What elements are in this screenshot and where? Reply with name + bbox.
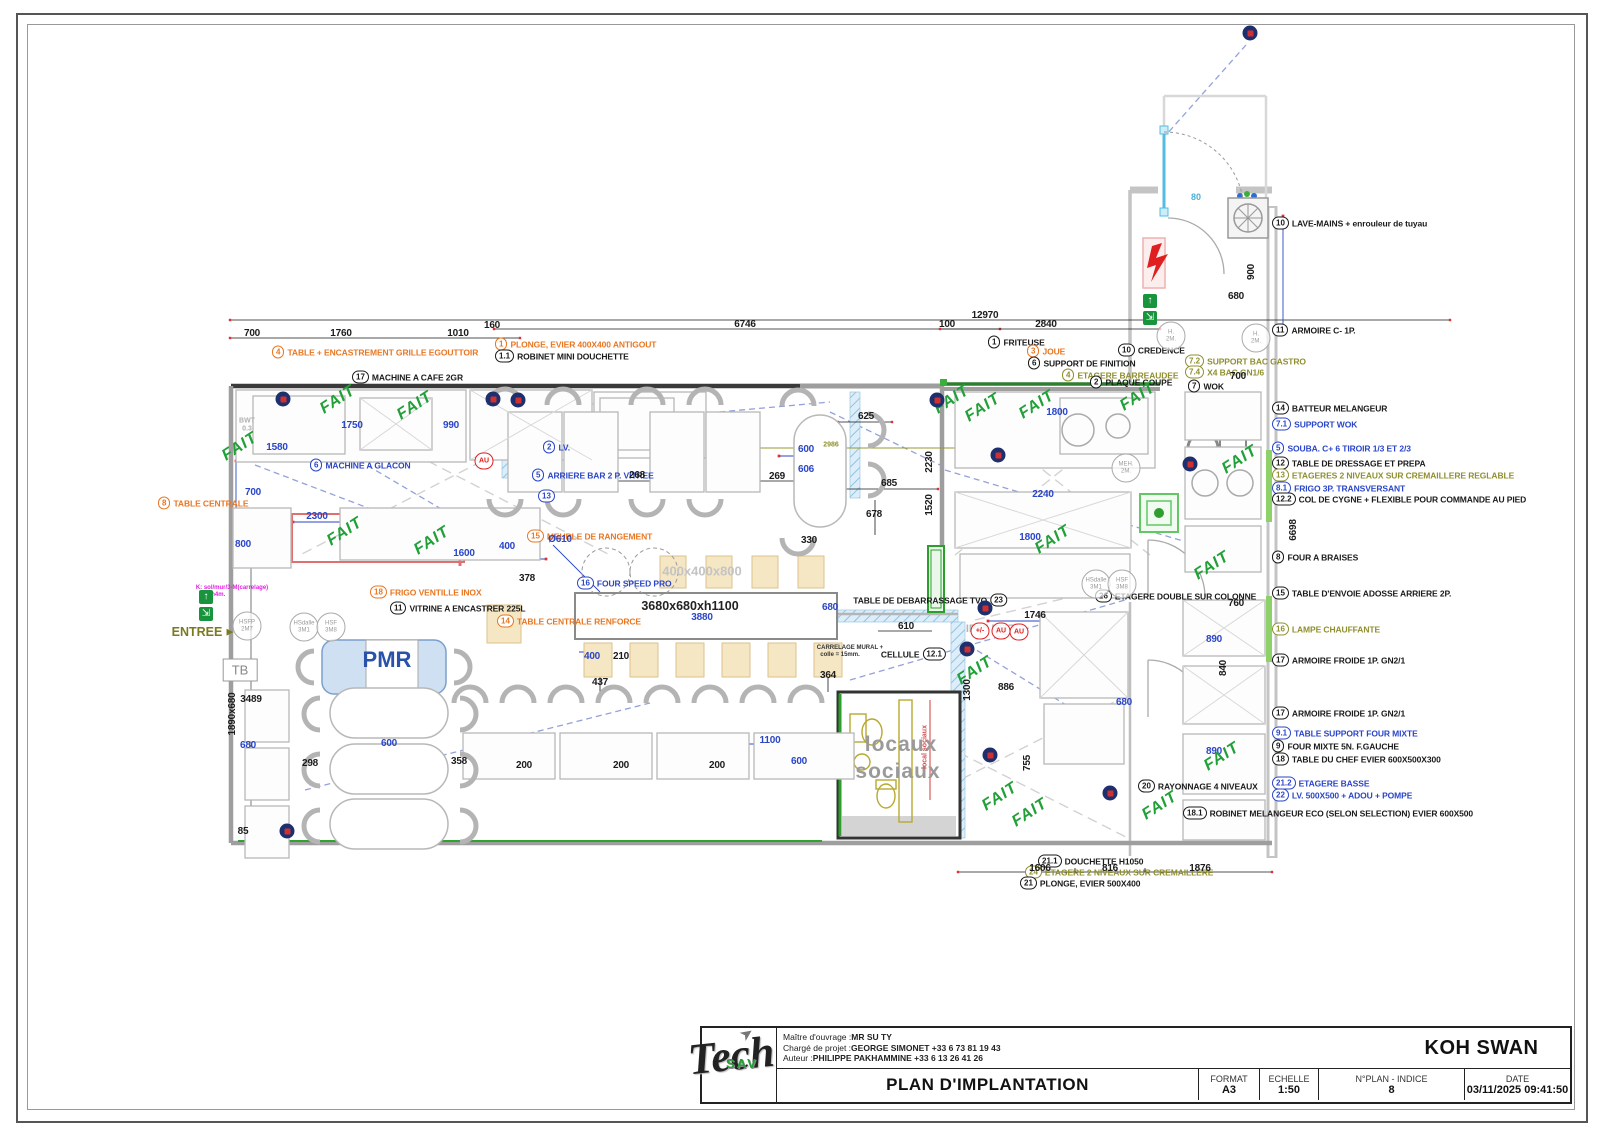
dimension-text: 680 — [822, 603, 838, 613]
dimension-text: 269 — [769, 472, 785, 482]
dimension-text: 1760 — [330, 329, 351, 339]
callout-2: 2LV. — [543, 441, 570, 454]
dimension-text: 600 — [791, 757, 807, 767]
callout-chip: 15 — [527, 530, 544, 543]
exit-icon: ↑ — [199, 590, 213, 604]
callout-chip: 17 — [1272, 654, 1289, 667]
callout-chip: 12.1 — [922, 648, 946, 661]
dimension-text: 1600 — [453, 549, 474, 559]
project-contacts: Maître d'ouvrage :MR SU TY Chargé de pro… — [777, 1032, 1203, 1064]
company-logo: ➤ Tech SAV — [702, 1028, 777, 1102]
callout-label: ARMOIRE FROIDE 1P. GN2/1 — [1292, 655, 1405, 665]
note-line2: 2M. — [1166, 336, 1176, 343]
dimension-text: 700 — [1230, 372, 1246, 382]
control-badge: +/- — [971, 623, 990, 640]
dimension-text: 755 — [1023, 755, 1033, 771]
callout-chip: 1 — [988, 336, 1000, 349]
callout-7.4: 7.4X4 BAC GN1/6 — [1185, 366, 1264, 379]
power-socket-icon — [1103, 786, 1118, 801]
dimension-text: 85 — [238, 827, 249, 837]
callout-label: SUPPORT DE FINITION — [1043, 358, 1135, 368]
dimension-text: 816 — [1102, 864, 1118, 874]
power-socket-icon — [1183, 457, 1198, 472]
callout-label: ARMOIRE FROIDE 1P. GN2/1 — [1292, 708, 1405, 718]
dimension-text: 678 — [866, 510, 882, 520]
control-badge: AU — [992, 623, 1011, 640]
dimension-text: 364 — [820, 671, 836, 681]
callout-label: FRIGO 3P. TRANSVERSANT — [1294, 483, 1405, 493]
dimension-text: 210 — [613, 652, 629, 662]
callout-label: COL DE CYGNE + FLEXIBLE POUR COMMANDE AU… — [1299, 494, 1527, 504]
height-note-circle: HSdalle3M1 — [290, 613, 319, 642]
callout-chip: 13 — [538, 490, 555, 503]
callout-chip: 14 — [1272, 402, 1289, 415]
callout-18: 18TABLE DU CHEF EVIER 600X500X300 — [1272, 753, 1441, 766]
callout-6: 6MACHINE A GLACON — [310, 459, 411, 472]
callout-label: FRIGO VENTILLE INOX — [390, 587, 482, 597]
callout-17: 17MACHINE A CAFE 2GR — [352, 371, 463, 384]
plan-number-value: 8 — [1388, 1084, 1394, 1096]
callout-16: 16LAMPE CHAUFFANTE — [1272, 623, 1380, 636]
dimension-text: 3880 — [691, 613, 712, 623]
dimension-text: 6698 — [1289, 519, 1299, 540]
callout-1.1: 1.1ROBINET MINI DOUCHETTE — [495, 350, 629, 363]
dimension-text: 1520 — [925, 494, 935, 515]
dimension-text: 625 — [858, 412, 874, 422]
dimension-text: 1580 — [266, 443, 287, 453]
pm-label: Chargé de projet : — [783, 1043, 851, 1053]
text-entree: ENTREE — [172, 625, 223, 639]
note-line1: MEH. — [1119, 461, 1134, 468]
height-note-circle: H.2M. — [1157, 322, 1186, 351]
dimension-text: 685 — [881, 479, 897, 489]
callout-label: ROBINET MELANGEUR ECO (SELON SELECTION) … — [1210, 808, 1473, 818]
callout-chip: 20 — [1138, 780, 1155, 793]
note-line2: 2M7 — [241, 626, 253, 633]
control-badge: AU — [475, 453, 494, 470]
fait-stamp: FAIT — [1219, 442, 1261, 478]
dimension-text: 1746 — [1024, 611, 1045, 621]
callout-8: 8TABLE CENTRALE — [158, 497, 248, 510]
dimension-text: 6746 — [734, 320, 755, 330]
callout-chip: 10 — [1272, 217, 1289, 230]
text-cyan: 80 — [1191, 192, 1201, 202]
power-socket-icon — [486, 392, 501, 407]
callout-7: 7WOK — [1188, 380, 1224, 393]
callout-15: 15MEUBLE DE RANGEMENT — [527, 530, 652, 543]
text-btable: 3680x680xh1100 — [641, 599, 738, 613]
dimension-text: 700 — [244, 329, 260, 339]
dimension-text: 680 — [240, 741, 256, 751]
note-line1: HSF — [1116, 577, 1128, 584]
callout-8: 8FOUR A BRAISES — [1272, 551, 1358, 564]
dimension-text: 330 — [801, 536, 817, 546]
fait-stamp: FAIT — [1191, 548, 1233, 584]
callout-label: ROBINET MINI DOUCHETTE — [517, 351, 629, 361]
note-line1: H. — [1168, 329, 1174, 336]
callout-9: 9FOUR MIXTE 5N. F.GAUCHE — [1272, 740, 1399, 753]
note-line2: 3M8 — [325, 627, 337, 634]
dimension-text: 1100 — [760, 736, 781, 746]
fait-stamp: FAIT — [1009, 795, 1051, 831]
format-label: FORMAT — [1210, 1074, 1247, 1084]
dimension-text: 760 — [1228, 599, 1244, 609]
callout-18.1: 18.1ROBINET MELANGEUR ECO (SELON SELECTI… — [1183, 807, 1473, 820]
callout-13: 13ETAGERES 2 NIVEAUX SUR CREMAILLERE REG… — [1272, 469, 1514, 482]
callout-17: 17ARMOIRE FROIDE 1P. GN2/1 — [1272, 654, 1405, 667]
callout-chip: 16 — [1272, 623, 1289, 636]
dimension-text: 1800 — [1046, 408, 1067, 418]
exit-icon: ⇲ — [199, 607, 213, 621]
callout-chip: 1.1 — [495, 350, 514, 363]
callout-label: TABLE SUPPORT FOUR MIXTE — [1294, 728, 1418, 738]
dimension-text: 610 — [898, 622, 914, 632]
callout-chip: 13 — [1272, 469, 1289, 482]
callout-chip: 5 — [532, 469, 544, 482]
dimension-text: 400 — [499, 542, 515, 552]
callout-label: TABLE + ENCASTREMENT GRILLE EGOUTTOIR — [287, 347, 478, 357]
text-tb: TB — [223, 659, 258, 682]
height-note-circle: HSFP2M7 — [233, 612, 262, 641]
callout-chip: 6 — [1028, 357, 1040, 370]
callout-label: TABLE DE DRESSAGE ET PREPA — [1292, 458, 1426, 468]
dimension-text: 700 — [245, 488, 261, 498]
text-ghostbig: 400x400x800 — [662, 564, 742, 579]
dimension-text: 600 — [381, 739, 397, 749]
text-tiny: colle = 15mm. — [820, 652, 860, 658]
owner-value: MR SU TY — [851, 1032, 892, 1042]
callout-label: PLONGE, EVIER 500X400 — [1040, 878, 1140, 888]
dimension-text: 606 — [798, 465, 814, 475]
fait-stamp: FAIT — [394, 388, 436, 424]
callout-label: TABLE D'ENVOIE ADOSSE ARRIERE 2P. — [1292, 588, 1451, 598]
callout-label: MACHINE A CAFE 2GR — [372, 372, 463, 382]
height-note-circle: HSdalle3M1 — [1082, 570, 1111, 599]
dimension-text: 12970 — [972, 311, 999, 321]
dimension-text: 890 — [1206, 635, 1222, 645]
callout-12.2: 12.2COL DE CYGNE + FLEXIBLE POUR COMMAND… — [1272, 493, 1526, 506]
callout-chip: 17 — [1272, 707, 1289, 720]
callout-label: VITRINE A ENCASTRER 225L — [409, 603, 525, 613]
callout-20: 20RAYONNAGE 4 NIVEAUX — [1138, 780, 1258, 793]
callout-chip: 4 — [272, 346, 284, 359]
callout-chip: 22 — [1272, 789, 1289, 802]
dimension-text: 268 — [629, 471, 645, 481]
fait-stamp: FAIT — [1032, 522, 1074, 558]
note-line2: 3M1 — [298, 627, 310, 634]
callout-chip: 23 — [990, 594, 1007, 607]
fait-stamp: FAIT — [317, 382, 359, 418]
callout-label: TABLE CENTRALE RENFORCE — [517, 616, 641, 626]
drawing-title: PLAN D'IMPLANTATION — [777, 1069, 1199, 1100]
callout-label: LV. — [558, 442, 570, 452]
logo-sav-text: SAV — [726, 1056, 758, 1071]
dimension-text: 358 — [451, 757, 467, 767]
callout-label: TABLE DU CHEF EVIER 600X500X300 — [1292, 754, 1441, 764]
callout-10: 10LAVE-MAINS + enrouleur de tuyau — [1272, 217, 1427, 230]
callout-label: FOUR A BRAISES — [1287, 552, 1358, 562]
note-line1: HSFP — [239, 619, 255, 626]
callout-chip: 9.1 — [1272, 727, 1291, 740]
callout-chip: 11 — [1272, 324, 1288, 337]
power-socket-icon — [960, 642, 975, 657]
exit-icon: ⇲ — [1143, 311, 1157, 325]
callout-chip: 16 — [577, 577, 594, 590]
callout-chip: 5 — [1272, 442, 1284, 455]
text-redv: local sociaux — [922, 725, 929, 769]
pm-value: GEORGE SIMONET +33 6 73 81 19 43 — [851, 1043, 1001, 1053]
callout-label: PLONGE, EVIER 400X400 ANTIGOUT — [510, 339, 656, 349]
plan-number-cell: N°PLAN - INDICE 8 — [1319, 1069, 1465, 1100]
text-ghost-c: BWT — [239, 418, 255, 425]
callout-label: LAVE-MAINS + enrouleur de tuyau — [1292, 218, 1427, 228]
dimension-text: 990 — [443, 421, 459, 431]
callout-label: JOUE — [1042, 346, 1065, 356]
callout-label: MACHINE A GLACON — [325, 460, 410, 470]
scale-cell: ECHELLE 1:50 — [1260, 1069, 1319, 1100]
dimension-text: 200 — [709, 761, 725, 771]
date-value: 03/11/2025 09:41:50 — [1467, 1084, 1569, 1096]
fait-stamp: FAIT — [219, 429, 261, 465]
dimension-text: 1750 — [341, 421, 362, 431]
callout-label: BATTEUR MELANGEUR — [1292, 403, 1387, 413]
exit-icon: ↑ — [1143, 294, 1157, 308]
power-socket-icon — [991, 448, 1006, 463]
callout-2: 2PLAQUE COUPE — [1090, 376, 1172, 389]
dimension-text: 200 — [613, 761, 629, 771]
dimension-text: 160 — [484, 321, 500, 331]
callout-label: ETAGERE 2 NIVEAUX SUR CREMAILLERE — [1045, 867, 1213, 877]
callout-16: 16FOUR SPEED PRO — [577, 577, 672, 590]
dimension-text: 2300 — [306, 512, 327, 522]
height-note-circle: HSF3M8 — [317, 613, 346, 642]
callout-15: 15TABLE D'ENVOIE ADOSSE ARRIERE 2P. — [1272, 587, 1451, 600]
note-line1: H. — [1253, 331, 1259, 338]
note-line1: HSdalle — [293, 620, 314, 627]
callout-chip: 2 — [1090, 376, 1102, 389]
plan-number-label: N°PLAN - INDICE — [1355, 1074, 1427, 1084]
power-socket-icon — [978, 601, 993, 616]
callout-chip: 10 — [1118, 344, 1135, 357]
callout-18: 18FRIGO VENTILLE INOX — [370, 586, 482, 599]
callout-chip: 7.4 — [1185, 366, 1204, 379]
author-label: Auteur : — [783, 1053, 813, 1063]
power-socket-icon — [1243, 26, 1258, 41]
callout-chip: 12.2 — [1272, 493, 1296, 506]
note-line2: 3M1 — [1090, 584, 1102, 591]
date-label: DATE — [1506, 1074, 1529, 1084]
dimension-text: 378 — [519, 574, 535, 584]
callout-label: LV. 500X500 + ADOU + POMPE — [1292, 790, 1412, 800]
owner-label: Maître d'ouvrage : — [783, 1032, 851, 1042]
callout-11: 11VITRINE A ENCASTRER 225L — [390, 602, 525, 615]
callout-pre-label: TABLE DE DEBARRASSAGE TVO — [853, 595, 987, 605]
dimension-text: 400 — [584, 652, 600, 662]
callout-label: ETAGERES 2 NIVEAUX SUR CREMAILLERE REGLA… — [1292, 470, 1514, 480]
note-line2: 3M8 — [1116, 584, 1128, 591]
dimension-text: 840 — [1219, 660, 1229, 676]
callout-label: SUPPORT WOK — [1294, 419, 1357, 429]
callout-chip: 15 — [1272, 587, 1289, 600]
callout-14: 14BATTEUR MELANGEUR — [1272, 402, 1387, 415]
callout-12.1: CELLULE12.1 — [881, 648, 946, 661]
note-line1: HSF — [325, 620, 337, 627]
height-note-circle: H.2M. — [1242, 324, 1271, 353]
power-socket-icon — [280, 824, 295, 839]
callout-21: 21PLONGE, EVIER 500X400 — [1020, 877, 1140, 890]
dimension-text: 800 — [235, 540, 251, 550]
title-block: ➤ Tech SAV Maître d'ouvrage :MR SU TY Ch… — [700, 1026, 1572, 1104]
callout-chip: 9 — [1272, 740, 1284, 753]
callout-11: 11ARMOIRE C- 1P. — [1272, 324, 1356, 337]
dimension-text: 200 — [516, 761, 532, 771]
callout-13: 13 — [538, 490, 555, 503]
fait-stamp: FAIT — [1139, 788, 1181, 824]
callout-chip: 6 — [310, 459, 322, 472]
callout-7.1: 7.1SUPPORT WOK — [1272, 418, 1357, 431]
date-cell: DATE 03/11/2025 09:41:50 — [1465, 1069, 1570, 1100]
callout-label: FOUR SPEED PRO — [597, 578, 672, 588]
callout-5: 5SOUBA. C+ 6 TIROIR 1/3 ET 2/3 — [1272, 442, 1411, 455]
callout-label: FOUR MIXTE 5N. F.GAUCHE — [1287, 741, 1399, 751]
dimension-text: 437 — [592, 678, 608, 688]
floor-plan-annotations: 10LAVE-MAINS + enrouleur de tuyau11ARMOI… — [0, 0, 1600, 1133]
note-line2: 2M. — [1251, 338, 1261, 345]
text-tiny: CARRELAGE MURAL + — [817, 645, 883, 651]
height-note-circle: MEH.2M. — [1112, 454, 1141, 483]
scale-label: ECHELLE — [1268, 1074, 1309, 1084]
callout-chip: 8 — [158, 497, 170, 510]
dimension-text: 298 — [302, 759, 318, 769]
power-socket-icon — [930, 393, 945, 408]
callout-label: LAMPE CHAUFFANTE — [1292, 624, 1380, 634]
note-line1: HSdalle — [1085, 577, 1106, 584]
text-olive-dim: 2986 — [823, 442, 839, 449]
dimension-text: 600 — [798, 445, 814, 455]
fait-stamp: FAIT — [979, 779, 1021, 815]
callout-label: WOK — [1203, 381, 1223, 391]
dimension-text: 680 — [1228, 292, 1244, 302]
power-socket-icon — [511, 393, 526, 408]
callout-label: ETAGERE BASSE — [1299, 778, 1370, 788]
callout-chip: 11 — [390, 602, 406, 615]
fait-stamp: FAIT — [1201, 739, 1243, 775]
callout-22: 22LV. 500X500 + ADOU + POMPE — [1272, 789, 1412, 802]
callout-chip: 4 — [1062, 369, 1074, 382]
power-socket-icon — [983, 748, 998, 763]
dimension-text: 2230 — [925, 451, 935, 472]
fait-stamp: FAIT — [954, 653, 996, 689]
dimension-text: 1876 — [1189, 864, 1210, 874]
callout-chip: 7.1 — [1272, 418, 1291, 431]
callout-chip: 14 — [497, 615, 514, 628]
callout-chip: 18.1 — [1183, 807, 1207, 820]
dimension-text: 680 — [1116, 698, 1132, 708]
callout-chip: 8 — [1272, 551, 1284, 564]
callout-chip: 7 — [1188, 380, 1200, 393]
callout-pre-label: CELLULE — [881, 649, 920, 659]
dimension-text: 1606 — [1029, 864, 1050, 874]
dimension-text: 1890x680 — [228, 693, 238, 736]
fait-stamp: FAIT — [324, 514, 366, 550]
callout-4: 4TABLE + ENCASTREMENT GRILLE EGOUTTOIR — [272, 346, 478, 359]
format-value: A3 — [1222, 1084, 1236, 1096]
callout-chip: 18 — [1272, 753, 1289, 766]
dimension-text: 1010 — [447, 329, 468, 339]
callout-label: SOUBA. C+ 6 TIROIR 1/3 ET 2/3 — [1287, 443, 1410, 453]
dimension-text: Ø610 — [548, 535, 572, 545]
callout-17: 17ARMOIRE FROIDE 1P. GN2/1 — [1272, 707, 1405, 720]
callout-label: ARMOIRE C- 1P. — [1291, 325, 1355, 335]
author-value: PHILIPPE PAKHAMMINE +33 6 13 26 41 26 — [813, 1053, 983, 1063]
power-socket-icon — [276, 392, 291, 407]
callout-9.1: 9.1TABLE SUPPORT FOUR MIXTE — [1272, 727, 1418, 740]
callout-label: TABLE CENTRALE — [173, 498, 248, 508]
height-note-circle: HSF3M8 — [1108, 570, 1137, 599]
control-badge: AU — [1010, 624, 1029, 641]
callout-14: 14TABLE CENTRALE RENFORCE — [497, 615, 641, 628]
dimension-text: 3489 — [240, 695, 261, 705]
callout-chip: 17 — [352, 371, 369, 384]
callout-chip: 2 — [543, 441, 555, 454]
dimension-text: 100 — [939, 320, 955, 330]
project-name: KOH SWAN — [1203, 1037, 1570, 1060]
fait-stamp: FAIT — [411, 523, 453, 559]
dimension-text: 2840 — [1035, 320, 1056, 330]
text-pmr: PMR — [363, 647, 412, 673]
dimension-text: 886 — [998, 683, 1014, 693]
scale-value: 1:50 — [1278, 1084, 1300, 1096]
callout-label: SUPPORT BAC GASTRO — [1207, 356, 1306, 366]
callout-chip: 18 — [370, 586, 387, 599]
format-cell: FORMAT A3 — [1199, 1069, 1260, 1100]
dimension-text: 2240 — [1032, 490, 1053, 500]
note-line2: 2M. — [1121, 468, 1131, 475]
dimension-text: 900 — [1247, 264, 1257, 280]
callout-chip: 21 — [1020, 877, 1037, 890]
drawing-sheet: 10LAVE-MAINS + enrouleur de tuyau11ARMOI… — [0, 0, 1600, 1133]
